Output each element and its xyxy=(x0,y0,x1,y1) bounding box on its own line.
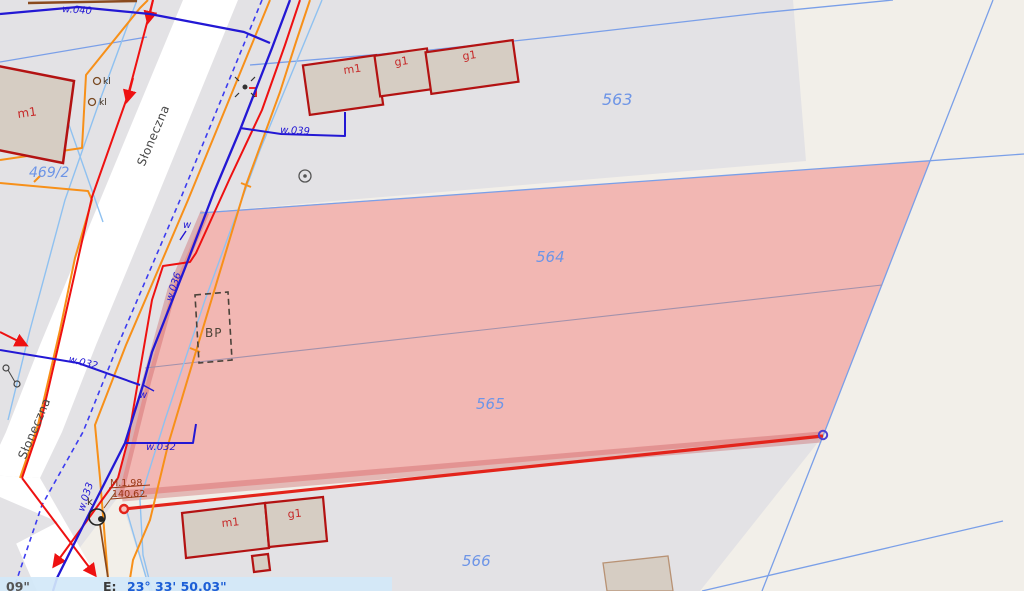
parcel-label-469-2: 469/2 xyxy=(29,165,69,181)
point-label-kl-1: kl xyxy=(103,77,111,87)
parcel-label-563: 563 xyxy=(602,90,633,109)
map-canvas[interactable]: Słoneczna Słoneczna 563 564 565 566 469/… xyxy=(0,0,1024,591)
manhole-k-blob xyxy=(98,516,104,522)
water-label-039: w.039 xyxy=(280,125,310,138)
measure-label-2: 140,62 xyxy=(112,489,145,500)
building-southeast[interactable] xyxy=(603,556,673,591)
longitude-value: 23° 33' 50.03" xyxy=(127,577,227,591)
water-label-040: w.040 xyxy=(62,4,93,17)
building-g1-south[interactable] xyxy=(265,497,327,547)
building-label-g1-south: g1 xyxy=(287,507,302,521)
measure-label-1: M.1,98 xyxy=(110,478,142,489)
coordinate-statusbar: 09" E: 23° 33' 50.03" xyxy=(0,577,392,591)
map-layers: Słoneczna Słoneczna 563 564 565 566 469/… xyxy=(0,0,1024,591)
geodetic-point-inner xyxy=(303,174,307,178)
building-label-g1-north-1: g1 xyxy=(394,54,410,69)
pole-symbol xyxy=(243,85,248,90)
building-label-m1-south: m1 xyxy=(221,515,240,530)
building-label-g1-north-2: g1 xyxy=(462,48,478,63)
building-label-m1-north: m1 xyxy=(343,62,362,77)
latitude-partial: 09" xyxy=(6,577,30,591)
bp-label: BP xyxy=(205,326,222,340)
point-label-k: k xyxy=(87,497,93,508)
water-label-w-1: w xyxy=(183,220,192,231)
building-south-notch[interactable] xyxy=(252,554,270,572)
point-label-kl-2: kl xyxy=(99,98,107,108)
longitude-prefix: E: xyxy=(103,577,117,591)
water-label-w-2: w xyxy=(139,390,148,401)
building-m1-west[interactable] xyxy=(0,64,74,163)
building-m1-south[interactable] xyxy=(182,503,269,558)
water-label-032-b: w.032 xyxy=(146,442,176,453)
parcel-label-565: 565 xyxy=(476,395,505,413)
parcel-label-564: 564 xyxy=(536,248,565,266)
building-label-m1-west: m1 xyxy=(16,104,37,121)
parcel-label-566: 566 xyxy=(462,552,491,570)
selection-node-west[interactable] xyxy=(120,505,128,513)
